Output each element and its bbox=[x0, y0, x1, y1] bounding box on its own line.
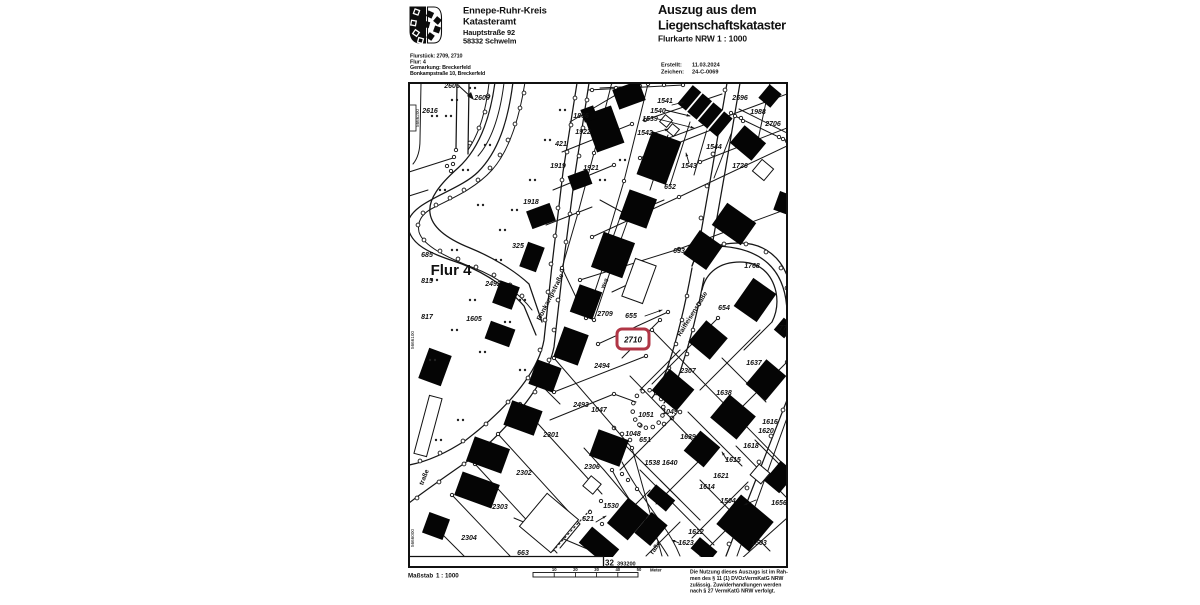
svg-text:2605: 2605 bbox=[443, 83, 460, 90]
svg-text:1539: 1539 bbox=[642, 116, 658, 123]
svg-text:1726: 1726 bbox=[732, 163, 748, 170]
svg-text:1768: 1768 bbox=[744, 263, 760, 270]
svg-text:2307: 2307 bbox=[679, 368, 697, 375]
svg-text:651: 651 bbox=[639, 437, 651, 444]
svg-text:2596: 2596 bbox=[731, 95, 748, 102]
svg-text:2609: 2609 bbox=[473, 95, 490, 102]
svg-text:1620: 1620 bbox=[758, 428, 774, 435]
svg-text:Flurkarte NRW 1 : 1000: Flurkarte NRW 1 : 1000 bbox=[658, 34, 747, 44]
svg-text:1615: 1615 bbox=[725, 457, 741, 464]
svg-text:11.03.2024: 11.03.2024 bbox=[692, 63, 721, 69]
svg-text:1540: 1540 bbox=[650, 108, 666, 115]
svg-text:1639: 1639 bbox=[680, 434, 696, 441]
svg-text:10: 10 bbox=[552, 567, 557, 572]
svg-text:2302: 2302 bbox=[515, 470, 532, 477]
svg-text:325: 325 bbox=[512, 243, 524, 250]
svg-text:Liegenschaftskataster: Liegenschaftskataster bbox=[658, 18, 786, 33]
svg-text:Auszug aus dem: Auszug aus dem bbox=[658, 2, 756, 17]
svg-text:1542: 1542 bbox=[637, 130, 653, 137]
svg-text:1538 1640: 1538 1640 bbox=[644, 460, 677, 467]
svg-text:2493: 2493 bbox=[572, 402, 589, 409]
svg-text:2709: 2709 bbox=[596, 311, 613, 318]
svg-text:1918: 1918 bbox=[523, 199, 539, 206]
svg-text:20: 20 bbox=[573, 567, 578, 572]
svg-text:Maßstab: Maßstab bbox=[408, 573, 433, 580]
svg-text:30: 30 bbox=[594, 567, 599, 572]
svg-text:1 : 1000: 1 : 1000 bbox=[436, 573, 459, 580]
svg-text:2306: 2306 bbox=[583, 464, 600, 471]
svg-text:5666100: 5666100 bbox=[410, 331, 415, 349]
svg-text:1638: 1638 bbox=[716, 390, 732, 397]
svg-text:1614: 1614 bbox=[699, 484, 715, 491]
svg-text:Erstellt:: Erstellt: bbox=[661, 63, 682, 69]
svg-text:1921: 1921 bbox=[583, 165, 599, 172]
svg-text:1618: 1618 bbox=[743, 443, 759, 450]
svg-text:1616: 1616 bbox=[762, 419, 778, 426]
svg-text:421: 421 bbox=[554, 141, 567, 148]
svg-text:1530: 1530 bbox=[603, 503, 619, 510]
svg-text:2706: 2706 bbox=[764, 121, 781, 128]
svg-text:1047: 1047 bbox=[591, 407, 608, 414]
svg-text:nach § 27 VermKatG NRW verfolg: nach § 27 VermKatG NRW verfolgt. bbox=[690, 589, 776, 595]
svg-text:653: 653 bbox=[673, 248, 685, 255]
svg-text:2301: 2301 bbox=[542, 432, 559, 439]
svg-text:621: 621 bbox=[582, 516, 594, 523]
svg-text:2492: 2492 bbox=[484, 281, 501, 288]
svg-text:1503: 1503 bbox=[751, 540, 767, 547]
svg-text:1543: 1543 bbox=[681, 163, 697, 170]
svg-text:1605: 1605 bbox=[466, 316, 482, 323]
svg-text:50: 50 bbox=[637, 567, 642, 572]
svg-text:655: 655 bbox=[625, 313, 637, 320]
svg-text:Katasteramt: Katasteramt bbox=[463, 16, 516, 27]
svg-text:654: 654 bbox=[718, 305, 730, 312]
svg-text:24-C-0069: 24-C-0069 bbox=[692, 70, 718, 76]
svg-text:1621: 1621 bbox=[713, 473, 729, 480]
svg-text:2710: 2710 bbox=[623, 336, 642, 345]
svg-text:2303: 2303 bbox=[491, 504, 508, 511]
svg-text:1919: 1919 bbox=[550, 163, 566, 170]
svg-text:1656: 1656 bbox=[771, 500, 787, 507]
svg-text:Flur 4: Flur 4 bbox=[431, 262, 472, 279]
svg-text:Hauptstraße 92: Hauptstraße 92 bbox=[463, 28, 515, 37]
svg-text:815: 815 bbox=[421, 278, 433, 285]
svg-text:5666000: 5666000 bbox=[410, 529, 415, 547]
svg-text:1866: 1866 bbox=[573, 113, 589, 120]
svg-text:32: 32 bbox=[605, 559, 614, 568]
svg-text:2616: 2616 bbox=[421, 108, 438, 115]
svg-text:1541: 1541 bbox=[657, 98, 673, 105]
svg-text:1504: 1504 bbox=[720, 498, 736, 505]
svg-text:1922: 1922 bbox=[575, 129, 591, 136]
svg-text:1622: 1622 bbox=[688, 529, 704, 536]
svg-text:58332 Schwelm: 58332 Schwelm bbox=[463, 37, 517, 46]
svg-text:2494: 2494 bbox=[593, 363, 610, 370]
svg-text:Meter: Meter bbox=[650, 568, 662, 573]
svg-text:1049: 1049 bbox=[662, 409, 678, 416]
svg-text:40: 40 bbox=[615, 567, 620, 572]
svg-text:men des § 11 (1) DVOzVermKatG: men des § 11 (1) DVOzVermKatG NRW bbox=[690, 576, 783, 582]
svg-text:1637: 1637 bbox=[746, 360, 763, 367]
svg-text:Ennepe-Ruhr-Kreis: Ennepe-Ruhr-Kreis bbox=[463, 5, 547, 16]
svg-text:2304: 2304 bbox=[460, 535, 477, 542]
svg-text:Zeichen:: Zeichen: bbox=[661, 70, 684, 76]
svg-text:1544: 1544 bbox=[706, 144, 722, 151]
svg-text:652: 652 bbox=[664, 184, 676, 191]
svg-text:1623: 1623 bbox=[678, 540, 694, 547]
svg-text:817: 817 bbox=[421, 314, 434, 321]
svg-text:Die Nutzung dieses Auszugs is: Die Nutzung dieses Auszugs ist im Rah- bbox=[690, 570, 788, 576]
svg-text:Bonkampstraße 10, Breckerfeld: Bonkampstraße 10, Breckerfeld bbox=[410, 71, 485, 77]
svg-text:685: 685 bbox=[421, 252, 433, 259]
svg-text:1988: 1988 bbox=[750, 109, 766, 116]
svg-text:zulässig. Zuwiderhandlungen: zulässig. Zuwiderhandlungen werden bbox=[690, 582, 781, 588]
svg-text:1051: 1051 bbox=[638, 412, 654, 419]
